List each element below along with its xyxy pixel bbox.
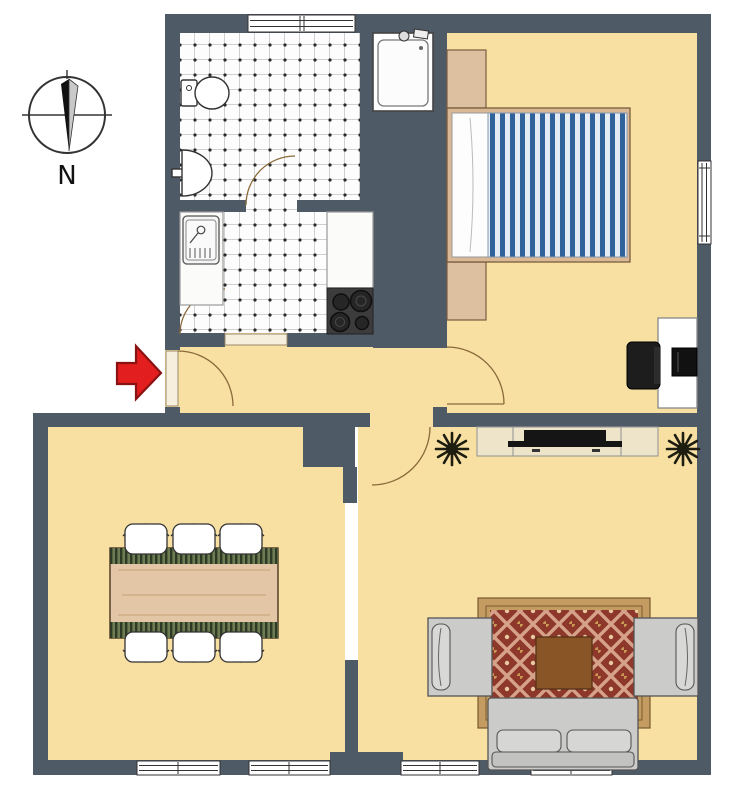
- bed-duvet: [488, 113, 627, 257]
- wall-left-upper: [165, 14, 180, 350]
- wall-chimney-block: [303, 427, 355, 467]
- monitor-icon: [672, 348, 697, 376]
- hallway-floor: [166, 347, 447, 413]
- wall-top: [165, 14, 711, 33]
- wall-dining-living-divider: [345, 660, 358, 760]
- dining-window-2: [249, 761, 330, 775]
- nightstand-top: [447, 50, 486, 108]
- chair-bottom-2: [171, 632, 217, 662]
- compass-rose: N: [22, 70, 112, 191]
- kitchen-counter-right: [327, 212, 373, 288]
- compass-label: N: [57, 161, 76, 191]
- kitchen-door-leaf: [225, 334, 287, 345]
- chair-top-3: [218, 524, 264, 554]
- entrance-arrow-icon: [117, 346, 161, 399]
- stove-icon: [327, 288, 373, 334]
- living-window-1: [401, 761, 479, 775]
- bedroom-window: [698, 161, 711, 244]
- wall-kitchen-bottom-left: [166, 333, 225, 347]
- coffee-table: [536, 637, 592, 689]
- chair-top-2: [171, 524, 217, 554]
- wall-bath-kitchen-right: [297, 200, 373, 212]
- wall-bathroom-right: [360, 33, 373, 212]
- sofa-back: [492, 752, 634, 767]
- chair-top-1: [123, 524, 169, 554]
- sofa-cushion-right: [567, 730, 631, 752]
- chair-bottom-3: [218, 632, 264, 662]
- wall-divider-foot: [330, 752, 403, 775]
- floor-plan: N: [0, 0, 744, 795]
- dining-table: [110, 548, 278, 638]
- wall-right: [697, 14, 711, 775]
- sofa-cushion-left: [497, 730, 561, 752]
- bathroom-door-opening: [246, 200, 297, 212]
- double-bed: [447, 108, 630, 262]
- armchair-left: [428, 618, 492, 696]
- armchair-right: [634, 618, 698, 696]
- bed-pillows: [452, 113, 488, 257]
- wall-left-lower: [33, 413, 48, 760]
- dining-window-1: [137, 761, 220, 775]
- wall-kitchen-bottom-right: [287, 333, 433, 347]
- bathroom-window: [248, 15, 355, 32]
- entrance-door-leaf: [166, 351, 178, 406]
- wall-divider-stub: [343, 467, 357, 503]
- floor-plan-canvas: N: [0, 0, 744, 795]
- chair-bottom-1: [123, 632, 169, 662]
- living-door-opening: [370, 413, 433, 427]
- wall-bedroom-left-upper: [433, 33, 447, 110]
- dining-room: [110, 524, 278, 662]
- wall-core-mass: [373, 110, 447, 348]
- wall-hallway-bottom: [33, 413, 370, 427]
- wall-bath-kitchen-left: [180, 200, 246, 212]
- wall-bedroom-bottom: [433, 413, 697, 427]
- office-chair-icon: [627, 342, 660, 389]
- toilet-icon: [181, 77, 229, 109]
- shower-icon: [373, 29, 433, 111]
- nightstand-bottom: [447, 262, 486, 320]
- kitchen-sink-icon: [183, 216, 219, 264]
- sofa: [488, 698, 638, 770]
